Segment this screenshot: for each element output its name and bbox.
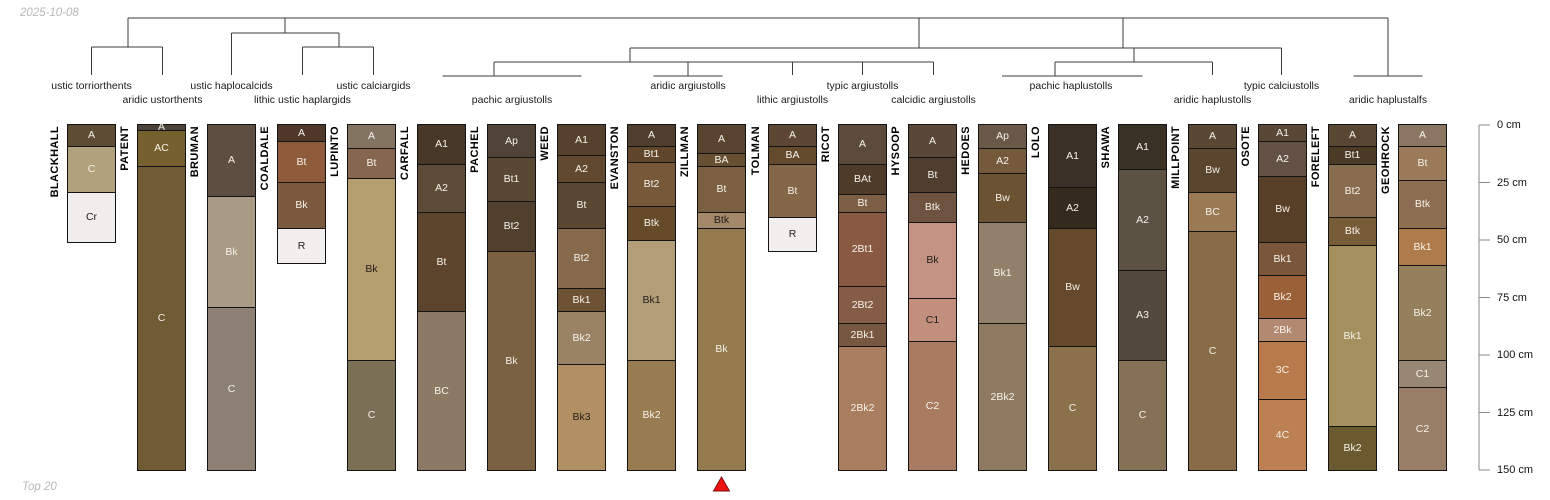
horizon-label: Bk2	[1343, 443, 1361, 454]
horizon-label: A2	[1136, 215, 1149, 226]
horizon: 4C	[1259, 399, 1306, 470]
depth-tick-label: 100 cm	[1497, 350, 1533, 361]
horizon-label: Bt1	[504, 174, 520, 185]
horizon-label: Bt	[717, 184, 727, 195]
profile-name: CARFALL	[400, 126, 411, 180]
taxon-label: calcidic argiustolls	[891, 95, 976, 106]
soil-profile-column: ACCr	[67, 124, 116, 243]
horizon: Bt2	[628, 162, 675, 206]
horizon: Bw	[1259, 176, 1306, 242]
horizon: Bt1	[628, 146, 675, 162]
horizon: Bk	[698, 228, 745, 470]
horizon-label: C	[228, 384, 236, 395]
horizon: A	[1329, 125, 1376, 146]
horizon-label: C	[158, 313, 166, 324]
horizon-label: A	[88, 130, 95, 141]
horizon: A	[769, 125, 816, 146]
horizon-label: Cr	[86, 212, 97, 223]
horizon: Bk1	[558, 288, 605, 311]
horizon: Bw	[1049, 228, 1096, 346]
soil-profile-column: ABtBtkBkC1C2	[908, 124, 957, 471]
horizon: Ap	[488, 125, 535, 157]
horizon-label: Bk2	[642, 410, 660, 421]
profile-name: SHAWA	[1101, 126, 1112, 168]
horizon: Bk1	[979, 222, 1026, 323]
horizon: 2Bt1	[839, 212, 886, 286]
horizon-label: BA	[785, 150, 799, 161]
horizon-label: Bt	[788, 186, 798, 197]
horizon: Bt2	[558, 228, 605, 288]
taxon-label: typic argiustolls	[827, 81, 899, 92]
profile-name: PATENT	[120, 126, 131, 171]
horizon-label: A1	[1136, 142, 1149, 153]
horizon: Cr	[68, 192, 115, 242]
horizon: Bk2	[1329, 426, 1376, 470]
horizon: 2Bk1	[839, 323, 886, 346]
horizon: Bt	[698, 166, 745, 212]
horizon-label: 2Bk	[1273, 325, 1291, 336]
horizon: Bk3	[558, 364, 605, 470]
horizon: 3C	[1259, 341, 1306, 399]
soil-profile-dendrogram-figure: 2025-10-08 ustic torriorthentsaridic ust…	[0, 0, 1550, 500]
horizon: A	[1189, 125, 1236, 148]
horizon-label: A	[789, 130, 796, 141]
horizon: C1	[1399, 360, 1446, 387]
horizon-label: Bk	[365, 264, 377, 275]
soil-profile-column: A1A2BwC	[1048, 124, 1097, 471]
horizon-label: Bw	[1275, 204, 1290, 215]
horizon-label: C1	[1416, 369, 1429, 380]
depth-tick-label: 125 cm	[1497, 408, 1533, 419]
horizon: A1	[418, 125, 465, 164]
depth-tick-label: 50 cm	[1497, 235, 1527, 246]
horizon-label: AC	[154, 143, 169, 154]
horizon-label: Bk	[715, 344, 727, 355]
horizon-label: 2Bk2	[851, 403, 875, 414]
horizon-label: 2Bt1	[852, 244, 874, 255]
horizon: C2	[909, 341, 956, 470]
horizon: Bk1	[1329, 245, 1376, 426]
horizon-label: Bt	[297, 157, 307, 168]
horizon: C	[348, 360, 395, 470]
horizon-label: A	[648, 130, 655, 141]
horizon-label: A3	[1136, 310, 1149, 321]
horizon-label: 2Bk1	[851, 330, 875, 341]
horizon-label: Btk	[714, 215, 729, 226]
horizon-label: A1	[1276, 128, 1289, 139]
horizon: Bw	[1189, 148, 1236, 192]
profile-name: MILLPOINT	[1171, 126, 1182, 189]
horizon: A2	[1259, 141, 1306, 176]
horizon-label: BAt	[854, 174, 871, 185]
profile-name: WEED	[540, 126, 551, 161]
horizon: A1	[558, 125, 605, 155]
horizon-label: Bk1	[1343, 331, 1361, 342]
soil-profile-column: ApBt1Bt2Bk	[487, 124, 536, 471]
profile-name: EVANSTON	[610, 126, 621, 189]
horizon-label: Bk	[505, 356, 517, 367]
profile-name: LUPINTO	[330, 126, 341, 177]
profile-name: PACHEL	[470, 126, 481, 173]
horizon: A1	[1049, 125, 1096, 187]
soil-profile-column: ABkC	[207, 124, 256, 471]
soil-profile-column: ABt1Bt2BtkBk1Bk2	[627, 124, 676, 471]
horizon: A	[348, 125, 395, 148]
horizon: 2Bk2	[979, 323, 1026, 470]
profile-name: LOLO	[1031, 126, 1042, 158]
taxon-label: ustic calciargids	[336, 81, 410, 92]
horizon-label: BC	[1205, 207, 1220, 218]
horizon: Bt	[769, 164, 816, 217]
profile-name: HYSOOP	[891, 126, 902, 175]
horizon: A	[698, 125, 745, 153]
soil-profile-column: A1A2BwBk1Bk22Bk3C4C	[1258, 124, 1307, 471]
horizon: Btk	[628, 206, 675, 240]
horizon: C	[208, 307, 255, 470]
taxon-label: lithic ustic haplargids	[254, 95, 351, 106]
horizon: BA	[698, 153, 745, 166]
horizon: A	[278, 125, 325, 141]
horizon-label: A1	[1066, 151, 1079, 162]
horizon: C	[1049, 346, 1096, 470]
horizon-label: Bk	[295, 200, 307, 211]
horizon-label: Bt	[1418, 158, 1428, 169]
horizon-label: A	[859, 139, 866, 150]
horizon: A	[68, 125, 115, 146]
horizon-label: Bk1	[642, 295, 660, 306]
horizon: A	[839, 125, 886, 164]
horizon: Bt2	[488, 201, 535, 251]
profile-name: COALDALE	[260, 126, 271, 190]
profile-name: BRUMAN	[190, 126, 201, 177]
horizon-label: Btk	[1345, 226, 1360, 237]
horizon-label: Btk	[925, 202, 940, 213]
horizon-label: Bk	[926, 255, 938, 266]
horizon-label: A	[1209, 131, 1216, 142]
soil-profile-column: ABt1Bt2BtkBk1Bk2	[1328, 124, 1377, 471]
horizon: Ap	[979, 125, 1026, 148]
horizon: C	[1189, 231, 1236, 470]
horizon-label: Bk2	[1413, 308, 1431, 319]
horizon: C1	[909, 298, 956, 341]
horizon: Bk	[348, 178, 395, 360]
footer-annotation: Top 20	[22, 481, 57, 493]
horizon: A2	[558, 155, 605, 182]
horizon-label: A1	[435, 139, 448, 150]
depth-tick-label: 0 cm	[1497, 120, 1521, 131]
horizon: Bk1	[1259, 242, 1306, 275]
horizon-label: Bk1	[572, 295, 590, 306]
horizon: Bk2	[1399, 265, 1446, 360]
horizon: Bk	[278, 182, 325, 228]
horizon-label: Bw	[1065, 282, 1080, 293]
horizon: Bk	[909, 222, 956, 298]
horizon: 2Bt2	[839, 286, 886, 323]
horizon-label: C1	[926, 315, 939, 326]
horizon: A	[628, 125, 675, 146]
horizon: 2Bk2	[839, 346, 886, 470]
horizon-label: A2	[1276, 154, 1289, 165]
horizon-label: Bt1	[644, 149, 660, 160]
horizon-label: A	[368, 131, 375, 142]
horizon: Bk1	[1399, 228, 1446, 265]
horizon-label: Bk3	[572, 412, 590, 423]
horizon-label: 4C	[1276, 430, 1289, 441]
horizon: R	[769, 217, 816, 251]
horizon: Bk2	[1259, 275, 1306, 318]
profile-name: OSOTE	[1241, 126, 1252, 167]
horizon-label: A	[1419, 130, 1426, 141]
soil-profile-column: ABtBkR	[277, 124, 326, 264]
horizon-label: Bk	[225, 247, 237, 258]
taxon-label: aridic haplustalfs	[1349, 95, 1427, 106]
horizon: Bt1	[1329, 146, 1376, 164]
horizon: A2	[979, 148, 1026, 173]
horizon-label: Ap	[996, 131, 1009, 142]
horizon-label: A	[929, 136, 936, 147]
horizon-label: R	[789, 229, 797, 240]
taxon-label: ustic torriorthents	[51, 81, 132, 92]
horizon-label: C	[1069, 403, 1077, 414]
horizon: A2	[418, 164, 465, 212]
horizon-label: Bt2	[504, 221, 520, 232]
horizon: A	[208, 125, 255, 196]
horizon-label: Bt2	[644, 179, 660, 190]
horizon-label: Bt2	[574, 253, 590, 264]
horizon: Bk	[208, 196, 255, 307]
depth-tick-label: 25 cm	[1497, 178, 1527, 189]
soil-profile-column: ABAtBt2Bt12Bt22Bk12Bk2	[838, 124, 887, 471]
flag-triangle-icon	[714, 477, 730, 491]
soil-profile-column: AACC	[137, 124, 186, 471]
horizon: C	[68, 146, 115, 192]
horizon-label: Btk	[1415, 199, 1430, 210]
horizon-label: Bk2	[1273, 292, 1291, 303]
horizon-label: 2Bt2	[852, 300, 874, 311]
horizon: Btk	[909, 192, 956, 222]
horizon-label: A2	[996, 156, 1009, 167]
horizon: R	[278, 228, 325, 263]
profile-name: GEOHROCK	[1381, 126, 1392, 194]
depth-tick-label: 75 cm	[1497, 293, 1527, 304]
horizon-label: 3C	[1276, 365, 1289, 376]
horizon-label: A	[228, 155, 235, 166]
taxon-label: pachic haplustolls	[1030, 81, 1113, 92]
horizon-label: BC	[434, 386, 449, 397]
horizon-label: A1	[575, 135, 588, 146]
horizon: C2	[1399, 387, 1446, 470]
horizon-label: C2	[926, 401, 939, 412]
horizon: A1	[1259, 125, 1306, 141]
horizon-label: Bw	[995, 193, 1010, 204]
horizon: C	[1119, 360, 1166, 470]
profile-name: RICOT	[821, 126, 832, 162]
profile-name: HEDOES	[961, 126, 972, 175]
horizon: A	[909, 125, 956, 157]
horizon: Bt	[909, 157, 956, 192]
taxon-label: aridic ustorthents	[123, 95, 203, 106]
horizon: Bt	[278, 141, 325, 182]
soil-profile-column: ABwBCC	[1188, 124, 1237, 471]
horizon: Btk	[1399, 180, 1446, 228]
profile-name: FORELEFT	[1311, 126, 1322, 187]
horizon-label: R	[298, 241, 306, 252]
horizon-label: C	[1209, 346, 1217, 357]
profile-name: BLACKHALL	[50, 126, 61, 197]
soil-profile-column: A1A2BtBC	[417, 124, 466, 471]
horizon: A2	[1049, 187, 1096, 228]
horizon: Bt	[839, 194, 886, 212]
horizon: Bt	[348, 148, 395, 178]
taxon-label: pachic argiustolls	[472, 95, 553, 106]
soil-profile-column: ABtBtkBk1Bk2C1C2	[1398, 124, 1447, 471]
horizon-label: A2	[435, 183, 448, 194]
taxon-label: lithic argiustolls	[757, 95, 828, 106]
taxon-label: aridic haplustolls	[1174, 95, 1252, 106]
horizon-label: C	[88, 164, 96, 175]
horizon: A3	[1119, 270, 1166, 360]
horizon-label: Bt	[437, 257, 447, 268]
horizon: BC	[1189, 192, 1236, 231]
horizon-label: Bk1	[1413, 242, 1431, 253]
horizon-label: A2	[1066, 203, 1079, 214]
profile-name: ZILLMAN	[680, 126, 691, 177]
soil-profile-column: ABABtBtkBk	[697, 124, 746, 471]
horizon-label: A	[1349, 130, 1356, 141]
depth-tick-label: 150 cm	[1497, 465, 1533, 476]
horizon-label: Bt	[928, 170, 938, 181]
horizon-label: Bt	[367, 158, 377, 169]
horizon-label: A	[298, 128, 305, 139]
horizon-label: Bt1	[1345, 150, 1361, 161]
horizon: 2Bk	[1259, 318, 1306, 341]
horizon: Bk2	[558, 311, 605, 364]
horizon-label: A	[718, 134, 725, 145]
horizon-label: C	[1139, 410, 1147, 421]
soil-profile-column: ABABtR	[768, 124, 817, 252]
horizon: Bt	[418, 212, 465, 311]
horizon: Bk2	[628, 360, 675, 470]
horizon: BA	[769, 146, 816, 164]
horizon: Bt2	[1329, 164, 1376, 217]
horizon: Bt1	[488, 157, 535, 201]
taxon-label: typic calciustolls	[1244, 81, 1319, 92]
horizon: A2	[1119, 169, 1166, 270]
horizon: Btk	[1329, 217, 1376, 245]
horizon: Bw	[979, 173, 1026, 222]
horizon-label: Bt2	[1345, 186, 1361, 197]
horizon-label: Bt	[577, 200, 587, 211]
horizon: Btk	[698, 212, 745, 228]
horizon-label: A2	[575, 164, 588, 175]
soil-profile-column: A1A2BtBt2Bk1Bk2Bk3	[557, 124, 606, 471]
horizon: C	[138, 166, 185, 470]
horizon: Bk1	[628, 240, 675, 360]
horizon: BC	[418, 311, 465, 470]
soil-profile-column: ABtBkC	[347, 124, 396, 471]
horizon: BAt	[839, 164, 886, 194]
horizon-label: BA	[714, 155, 728, 166]
horizon-label: Bk2	[572, 333, 590, 344]
date-annotation: 2025-10-08	[20, 7, 79, 19]
horizon-label: Bw	[1205, 165, 1220, 176]
soil-profile-column: ApA2BwBk12Bk2	[978, 124, 1027, 471]
profile-name: TOLMAN	[751, 126, 762, 175]
horizon-label: C	[368, 410, 376, 421]
horizon-label: Bk1	[993, 268, 1011, 279]
horizon: Bt	[1399, 146, 1446, 180]
horizon: A	[1399, 125, 1446, 146]
horizon-label: Bt	[858, 198, 868, 209]
taxon-label: ustic haplocalcids	[190, 81, 272, 92]
horizon: AC	[138, 130, 185, 166]
horizon-label: C2	[1416, 424, 1429, 435]
horizon: Bk	[488, 251, 535, 470]
horizon-label: 2Bk2	[991, 392, 1015, 403]
horizon-label: Ap	[505, 136, 518, 147]
taxon-label: aridic argiustolls	[650, 81, 725, 92]
horizon: Bt	[558, 182, 605, 228]
horizon-label: Btk	[644, 218, 659, 229]
horizon-label: Bk1	[1273, 254, 1291, 265]
horizon: A1	[1119, 125, 1166, 169]
soil-profile-column: A1A2A3C	[1118, 124, 1167, 471]
